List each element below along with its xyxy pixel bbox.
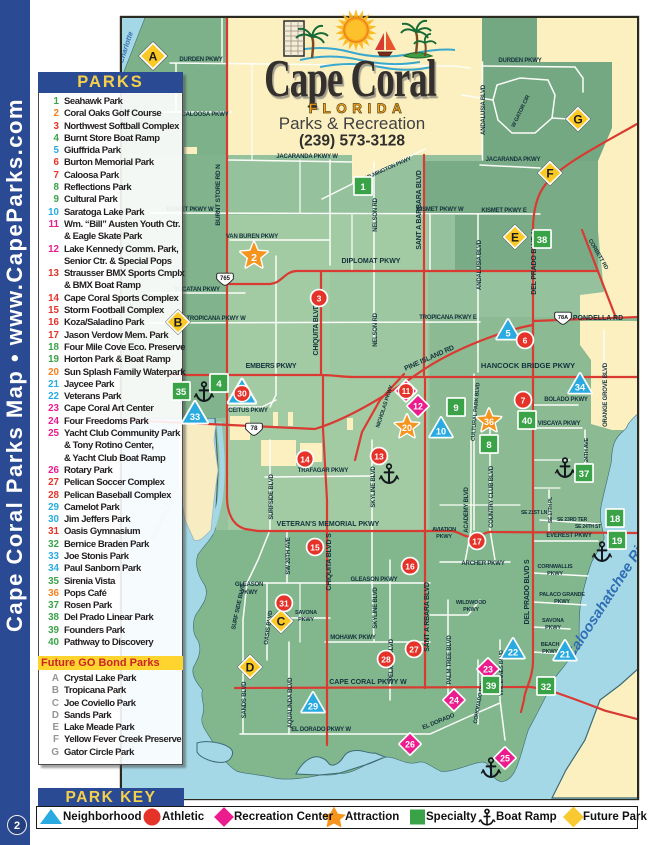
svg-text:VISCAYA PKWY: VISCAYA PKWY	[538, 421, 581, 427]
svg-text:CAPE CORAL PKWY W: CAPE CORAL PKWY W	[329, 679, 407, 686]
svg-text:SE 17TH PL: SE 17TH PL	[548, 497, 554, 523]
svg-text:BURNT STORE RD N: BURNT STORE RD N	[215, 164, 222, 226]
svg-text:CORNWALLIS: CORNWALLIS	[538, 564, 574, 570]
svg-text:ANDALUSIA BLVD: ANDALUSIA BLVD	[481, 84, 487, 135]
svg-text:DEL PRADO BLVD S: DEL PRADO BLVD S	[524, 559, 531, 625]
svg-text:DEL PRADO BLVD N: DEL PRADO BLVD N	[531, 229, 538, 295]
svg-text:PALACO GRANDE: PALACO GRANDE	[539, 592, 585, 598]
svg-text:GLEASON PKWY: GLEASON PKWY	[351, 577, 398, 583]
svg-text:BOLADO PKWY: BOLADO PKWY	[544, 397, 588, 403]
svg-text:SAVONA: SAVONA	[542, 618, 564, 624]
svg-text:24TH AVE: 24TH AVE	[584, 437, 590, 462]
svg-text:DURDEN PKWY: DURDEN PKWY	[498, 58, 541, 64]
svg-text:NELSON RD: NELSON RD	[373, 197, 379, 231]
svg-text:Parks & Recreation: Parks & Recreation	[279, 114, 425, 133]
svg-text:AVIATION: AVIATION	[432, 527, 456, 533]
svg-text:765: 765	[220, 276, 231, 282]
svg-text:PALM TREE BLVD: PALM TREE BLVD	[447, 635, 453, 685]
svg-text:SE 23RD TER: SE 23RD TER	[557, 517, 588, 523]
svg-text:EMBERS PKWY: EMBERS PKWY	[246, 363, 297, 370]
svg-text:HANCOCK BRIDGE PKWY: HANCOCK BRIDGE PKWY	[481, 361, 575, 370]
svg-text:EVEREST PKWY: EVEREST PKWY	[546, 533, 591, 539]
svg-text:CEITUS PKWY: CEITUS PKWY	[228, 408, 268, 414]
svg-text:(239) 573-3128: (239) 573-3128	[299, 133, 405, 150]
svg-text:PKWY: PKWY	[547, 571, 563, 577]
svg-text:SKYLINE BLVD: SKYLINE BLVD	[373, 587, 379, 629]
svg-text:GLEASON: GLEASON	[235, 582, 263, 588]
svg-text:ACADEMY BLVD: ACADEMY BLVD	[464, 486, 470, 532]
svg-text:PKWY: PKWY	[298, 617, 314, 623]
svg-text:BEACH: BEACH	[541, 642, 560, 648]
svg-text:78: 78	[250, 425, 258, 432]
svg-text:SANT A RBARA BLVD: SANT A RBARA BLVD	[424, 582, 431, 652]
svg-text:Cape Coral: Cape Coral	[264, 48, 436, 107]
svg-text:AQUALINDA BLVD: AQUALINDA BLVD	[288, 677, 294, 728]
svg-text:WILDWOOD: WILDWOOD	[456, 600, 486, 606]
svg-text:SANDS BLVD: SANDS BLVD	[242, 681, 248, 718]
svg-text:VINCENNES BLVD: VINCENNES BLVD	[499, 650, 505, 696]
svg-text:MOHAWK PKWY: MOHAWK PKWY	[330, 635, 376, 641]
svg-text:PKWY: PKWY	[545, 625, 561, 631]
svg-text:VETERAN'S MEMORIAL PKWY: VETERAN'S MEMORIAL PKWY	[277, 521, 380, 528]
svg-text:SKYLINE BLVD: SKYLINE BLVD	[371, 466, 377, 508]
svg-text:EL DORADO PKWY W: EL DORADO PKWY W	[291, 727, 351, 733]
svg-text:ORANGE GROVE BLVD: ORANGE GROVE BLVD	[603, 362, 609, 427]
svg-text:CHIQUITA BLVD S: CHIQUITA BLVD S	[326, 533, 333, 591]
svg-text:TRAFAGAR PKWY: TRAFAGAR PKWY	[298, 468, 349, 474]
svg-text:ANDALUSIA BLVD: ANDALUSIA BLVD	[477, 239, 483, 290]
svg-text:78A: 78A	[558, 315, 568, 321]
svg-text:SE 21ST LN: SE 21ST LN	[521, 510, 548, 516]
svg-text:SW 20TH AVE: SW 20TH AVE	[286, 537, 292, 574]
svg-text:COUNTRY CLUB BLVD: COUNTRY CLUB BLVD	[489, 465, 495, 528]
svg-text:DIPLOMAT PKWY: DIPLOMAT PKWY	[342, 258, 401, 265]
svg-text:KISMET PKWY W: KISMET PKWY W	[417, 207, 464, 213]
svg-text:PKWY: PKWY	[542, 649, 558, 655]
svg-text:PELICAN BLVD: PELICAN BLVD	[389, 638, 395, 680]
svg-text:PKWY: PKWY	[554, 599, 570, 605]
svg-text:DURDEN PKWY: DURDEN PKWY	[179, 57, 222, 63]
svg-text:SURFSIDE BLVD: SURFSIDE BLVD	[269, 473, 275, 519]
svg-text:JACARANDA PKWY W: JACARANDA PKWY W	[276, 154, 338, 160]
svg-text:JACARANDA PKWY: JACARANDA PKWY	[486, 157, 541, 163]
svg-text:NELSON RD: NELSON RD	[373, 312, 379, 346]
svg-text:PKWY: PKWY	[436, 534, 452, 540]
svg-text:TROPICANA PKWY W: TROPICANA PKWY W	[186, 316, 246, 322]
svg-text:SAVONA: SAVONA	[295, 610, 317, 616]
svg-text:TROPICANA PKWY E: TROPICANA PKWY E	[419, 315, 477, 321]
svg-text:KISMET PKWY E: KISMET PKWY E	[481, 208, 526, 214]
svg-text:PKWY: PKWY	[463, 607, 479, 613]
svg-text:SANT A BARBARA BLVD: SANT A BARBARA BLVD	[416, 170, 423, 249]
svg-text:PONDELLA RD: PONDELLA RD	[573, 315, 623, 322]
svg-text:ARCHER PKWY: ARCHER PKWY	[461, 561, 504, 567]
svg-text:CHIQUITA BLVD: CHIQUITA BLVD	[313, 304, 320, 355]
svg-text:VAN BUREN PKWY: VAN BUREN PKWY	[226, 234, 278, 240]
svg-text:SE 24TH ST: SE 24TH ST	[575, 524, 601, 530]
